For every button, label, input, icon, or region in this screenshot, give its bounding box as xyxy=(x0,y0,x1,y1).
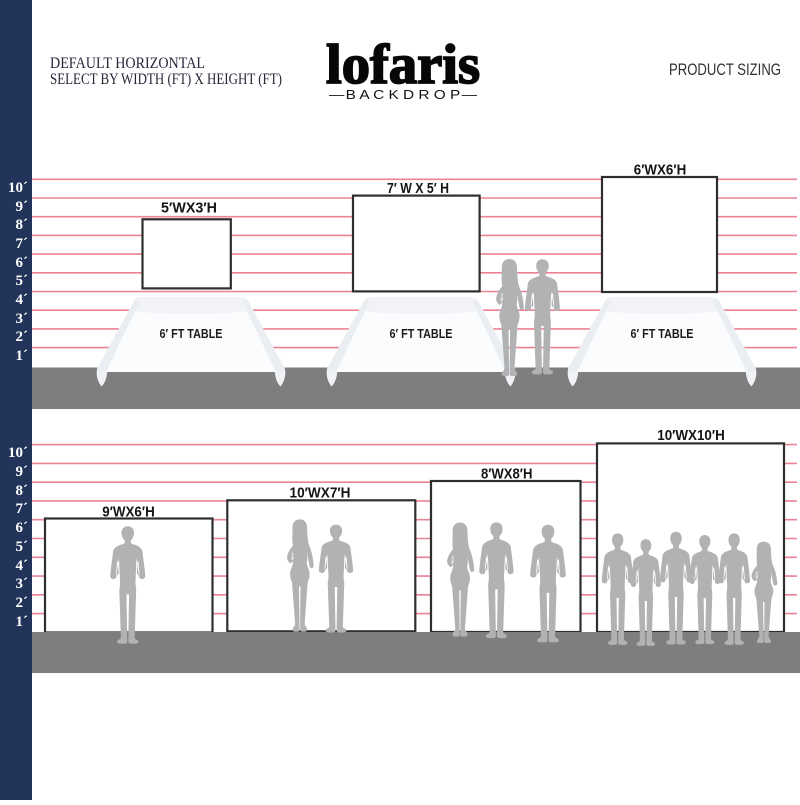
svg-text:4´: 4´ xyxy=(16,558,29,574)
svg-text:3´: 3´ xyxy=(16,311,29,327)
svg-text:8´: 8´ xyxy=(16,217,29,233)
svg-text:— B A C K D R O P —: — B A C K D R O P — xyxy=(329,87,477,102)
svg-text:6′WX6′H: 6′WX6′H xyxy=(634,163,687,179)
svg-text:5′WX3′H: 5′WX3′H xyxy=(161,201,217,217)
svg-text:9´: 9´ xyxy=(16,464,29,480)
svg-text:10´: 10´ xyxy=(8,180,28,196)
svg-text:6´: 6´ xyxy=(16,520,29,536)
svg-text:5´: 5´ xyxy=(16,273,29,289)
svg-text:4´: 4´ xyxy=(16,292,29,308)
svg-text:9´: 9´ xyxy=(16,199,29,215)
svg-text:5´: 5´ xyxy=(16,539,29,555)
svg-text:10′WX10′H: 10′WX10′H xyxy=(657,428,725,444)
svg-text:DEFAULT HORIZONTAL: DEFAULT HORIZONTAL xyxy=(50,55,205,72)
svg-text:7´: 7´ xyxy=(16,236,29,252)
svg-text:1´: 1´ xyxy=(16,348,29,364)
svg-text:10´: 10´ xyxy=(8,445,28,461)
svg-text:3´: 3´ xyxy=(16,576,29,592)
svg-text:9′WX6′H: 9′WX6′H xyxy=(102,505,155,521)
svg-text:8´: 8´ xyxy=(16,483,29,499)
svg-text:PRODUCT SIZING: PRODUCT SIZING xyxy=(669,60,781,79)
svg-text:7´: 7´ xyxy=(16,501,29,517)
svg-text:2´: 2´ xyxy=(16,595,29,611)
svg-text:2´: 2´ xyxy=(16,329,29,345)
svg-text:10′WX7′H: 10′WX7′H xyxy=(290,486,351,502)
svg-text:7′ W X 5′ H: 7′ W X 5′ H xyxy=(387,181,449,197)
svg-text:6´: 6´ xyxy=(16,255,29,271)
svg-text:SELECT BY WIDTH (FT) X HEIGHT: SELECT BY WIDTH (FT) X HEIGHT (FT) xyxy=(50,71,282,88)
svg-text:8′WX8′H: 8′WX8′H xyxy=(481,467,533,483)
svg-text:1´: 1´ xyxy=(16,614,29,630)
